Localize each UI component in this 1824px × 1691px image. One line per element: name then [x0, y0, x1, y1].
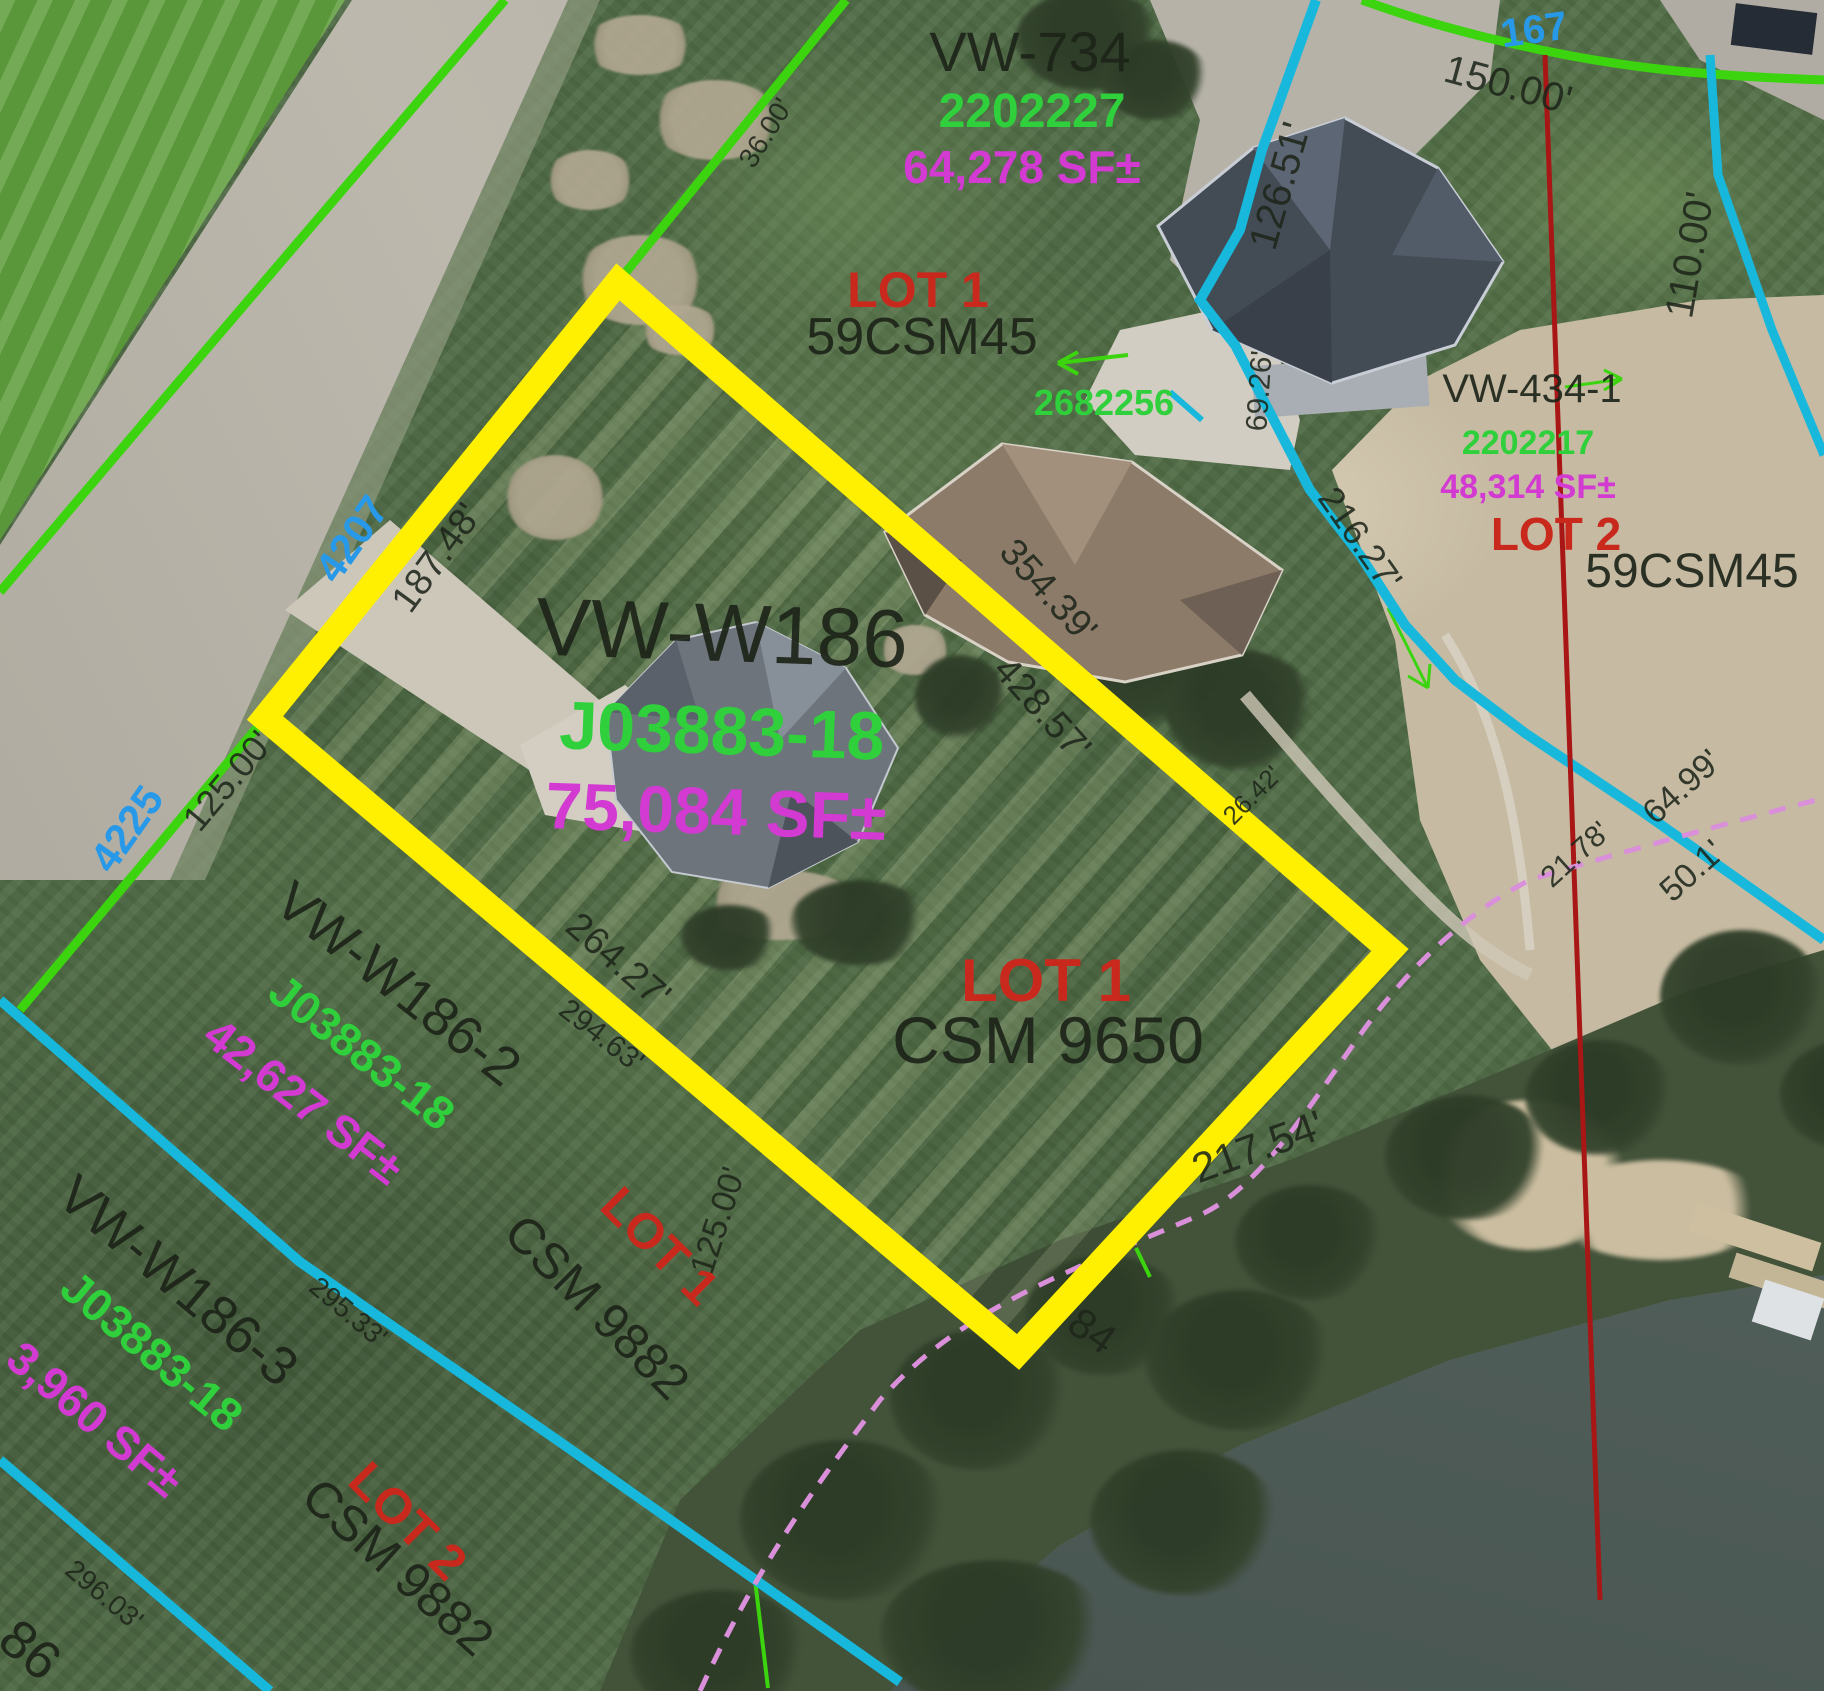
parcel-id-vw-w186: J03883-18	[558, 691, 885, 770]
dimension-126-51: 126.51'	[1243, 118, 1317, 254]
dimension-354-39: 354.39'	[993, 532, 1104, 649]
csm-label-vw434: 59CSM45	[1585, 548, 1798, 596]
dimension-187-48: 187.48'	[385, 497, 488, 619]
edge-fragment-label: 86	[0, 1610, 70, 1690]
dimension-216-27: 216.27'	[1312, 481, 1409, 597]
dimension-69-26: 69.26'	[1242, 350, 1278, 433]
dimension-26-42: 26.42'	[1218, 761, 1286, 829]
parcel-area-vw434: 48,314 SF±	[1440, 470, 1616, 504]
dimension-64-99: 64.99'	[1637, 744, 1728, 831]
dimension-428-57: 428.57'	[987, 650, 1098, 767]
parcel-id-vw434: 2202217	[1462, 426, 1594, 460]
lot-label-vw-w186: LOT 1	[961, 951, 1131, 1011]
parcel-id-vw734: 2202227	[939, 88, 1126, 136]
parcel-name-vw434: VW-434-1	[1442, 369, 1621, 409]
parcel-area-vw734: 64,278 SF±	[903, 144, 1141, 190]
parcel-name-vw734: VW-734	[929, 24, 1130, 80]
dimension-84: 84	[1061, 1300, 1123, 1361]
map-labels: VW-734 2202227 64,278 SF± LOT 1 59CSM45 …	[0, 0, 1824, 1691]
dimension-295-33: 295.33'	[304, 1272, 392, 1352]
dimension-294-63: 294.63'	[553, 994, 648, 1078]
survey-pin-label: 2682256	[1034, 385, 1174, 421]
parcel-area-vw-w186: 75,084 SF±	[545, 772, 888, 850]
parcel-name-vw-w186: VW-W186	[535, 587, 910, 682]
dimension-110-00: 110.00'	[1659, 189, 1720, 321]
dimension-150-00: 150.00'	[1440, 49, 1576, 121]
address-label-4225: 4225	[83, 779, 171, 880]
dimension-125-00-road: 125.00'	[177, 725, 280, 838]
gis-aerial-parcel-map[interactable]: VW-734 2202227 64,278 SF± LOT 1 59CSM45 …	[0, 0, 1824, 1691]
dimension-21-78: 21.78'	[1536, 817, 1616, 893]
dimension-50-1: 50.1'	[1654, 834, 1731, 908]
csm-label-vw734: 59CSM45	[806, 311, 1037, 363]
address-label-4207: 4207	[308, 489, 396, 590]
dimension-296-03: 296.03'	[60, 1555, 148, 1635]
csm-label-vw-w186: CSM 9650	[892, 1007, 1204, 1073]
address-label-167: 167	[1498, 6, 1570, 55]
dimension-217-54: 217.54'	[1187, 1104, 1330, 1190]
dimension-36-00: 36.00'	[734, 94, 798, 173]
